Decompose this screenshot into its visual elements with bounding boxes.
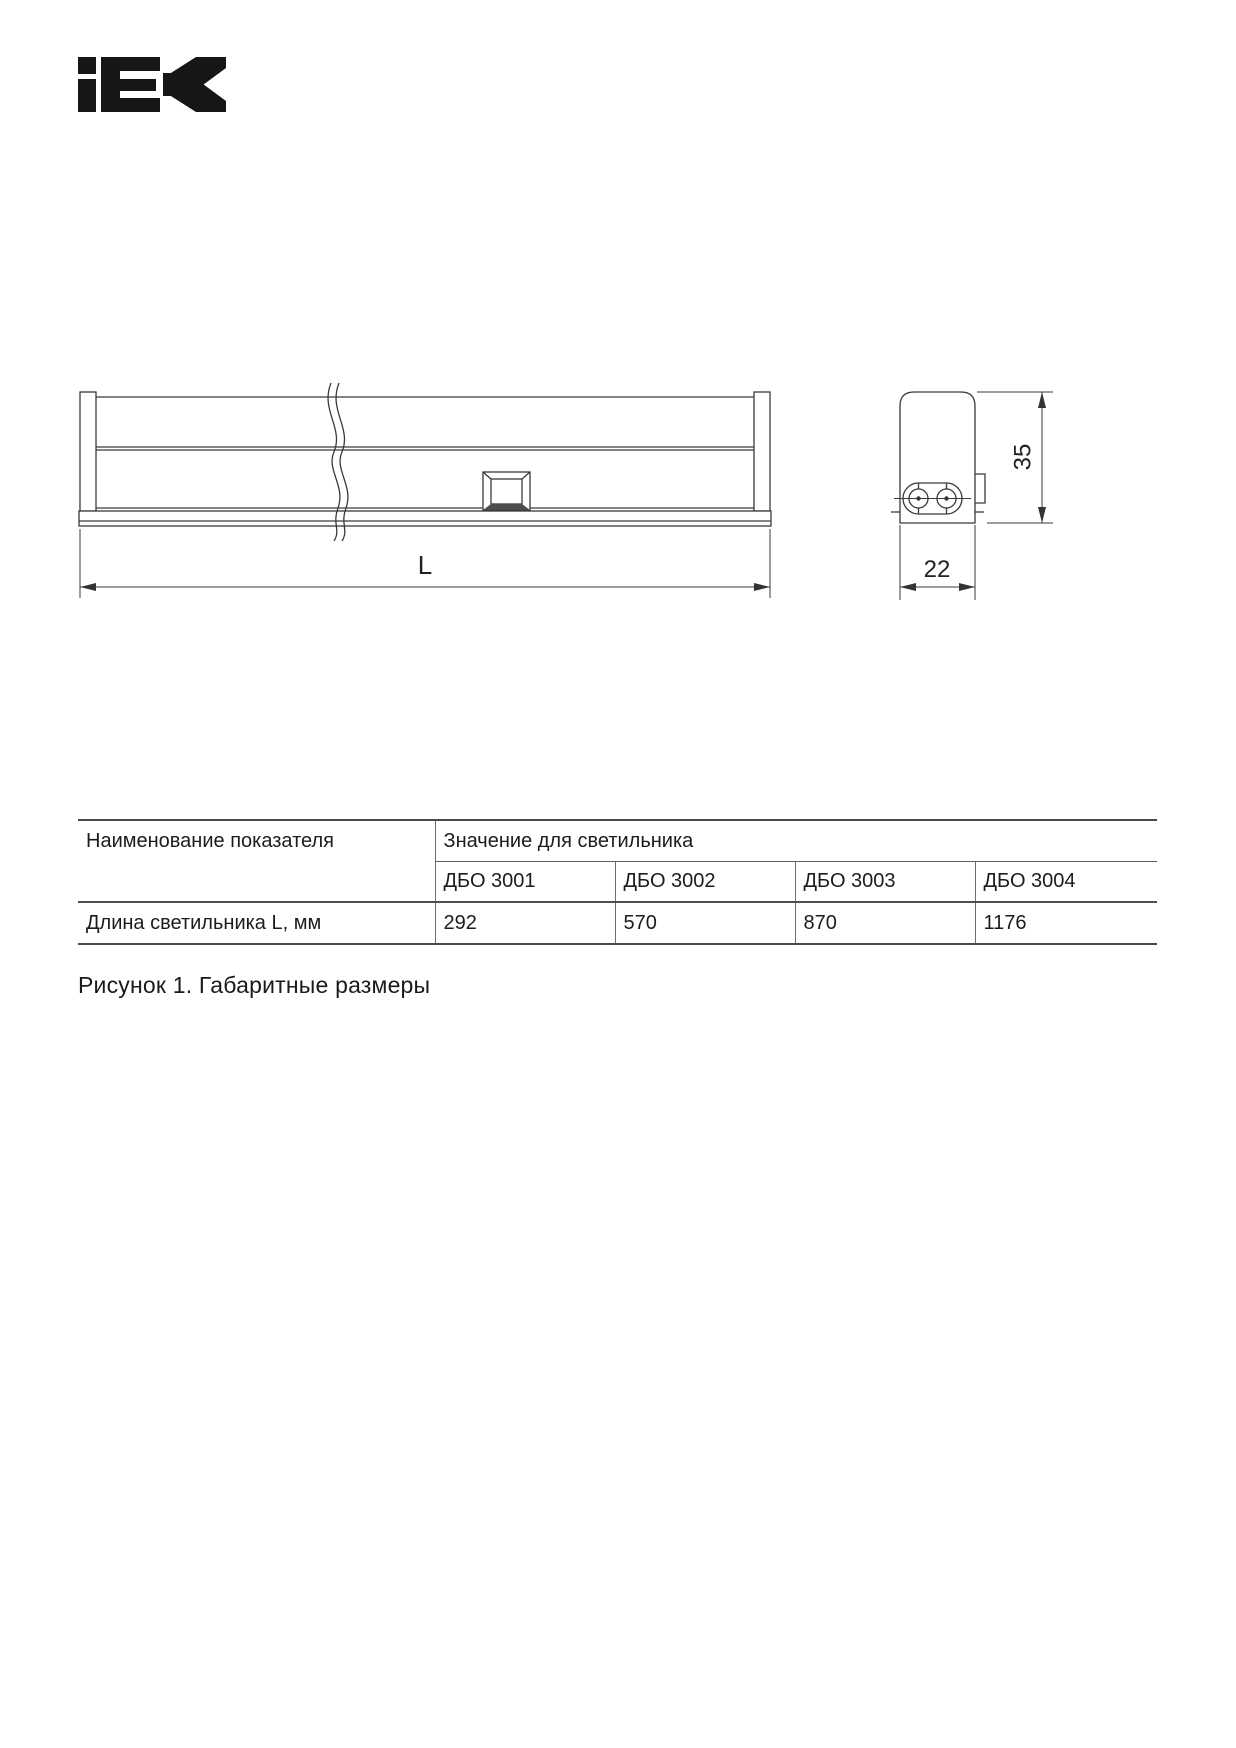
table-value-2: 570 xyxy=(615,902,795,944)
height-label: 35 xyxy=(1009,444,1036,471)
depth-label: 22 xyxy=(924,556,951,583)
table-value-3: 870 xyxy=(795,902,975,944)
table-value-4: 1176 xyxy=(975,902,1157,944)
mounting-flange xyxy=(79,511,771,526)
side-tab xyxy=(975,474,985,503)
end-cap-right xyxy=(754,392,770,511)
power-switch xyxy=(483,472,530,510)
document-page: L 35 22 xyxy=(0,0,1236,1748)
arrow-up xyxy=(1038,392,1046,408)
arrow-left xyxy=(80,583,96,591)
end-cap-left xyxy=(80,392,96,511)
arrow-right-22 xyxy=(959,583,975,591)
switch-inner xyxy=(491,479,522,504)
dimension-drawing: L 35 22 xyxy=(0,0,1236,660)
length-label: L xyxy=(418,550,432,580)
table-header-model-2: ДБО 3002 xyxy=(615,862,795,903)
luminaire-front-view xyxy=(79,383,771,541)
table-header-parameter: Наименование показателя xyxy=(78,820,435,902)
table-row-label: Длина светильника L, мм xyxy=(78,902,435,944)
table-header-model-4: ДБО 3004 xyxy=(975,862,1157,903)
figure-caption: Рисунок 1. Габаритные размеры xyxy=(78,972,430,999)
switch-shadow xyxy=(483,504,530,510)
table-header-values-group: Значение для светильника xyxy=(435,820,1157,862)
arrow-left-22 xyxy=(900,583,916,591)
dimension-length: L xyxy=(80,529,770,598)
arrow-right xyxy=(754,583,770,591)
luminaire-side-view xyxy=(891,392,985,523)
dimension-height: 35 xyxy=(977,392,1053,523)
table-header-model-1: ДБО 3001 xyxy=(435,862,615,903)
table-value-1: 292 xyxy=(435,902,615,944)
spec-table-container: Наименование показателя Значение для све… xyxy=(78,819,1157,945)
table-header-model-3: ДБО 3003 xyxy=(795,862,975,903)
dimension-depth: 22 xyxy=(900,525,975,600)
spec-table: Наименование показателя Значение для све… xyxy=(78,819,1157,945)
arrow-down xyxy=(1038,507,1046,523)
